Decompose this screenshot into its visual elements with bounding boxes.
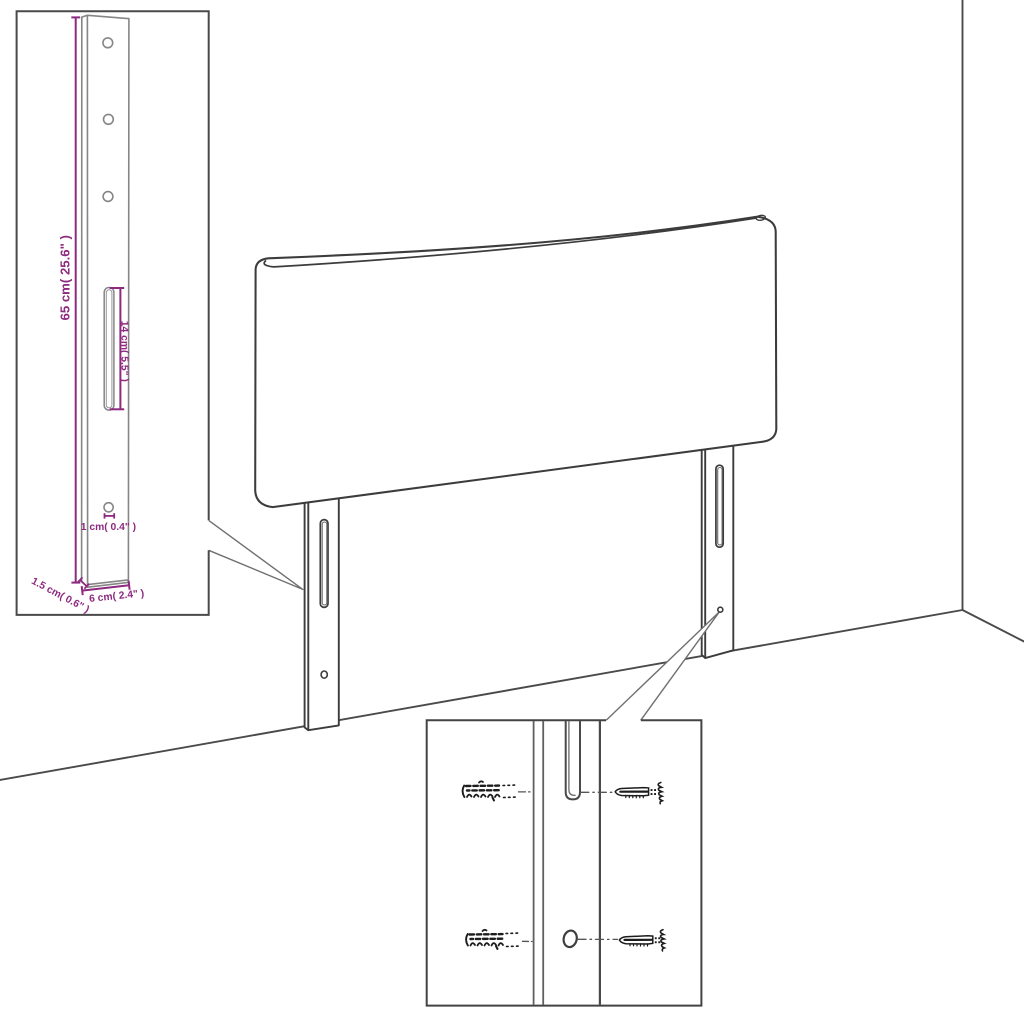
svg-text:14 cm( 5.5" ): 14 cm( 5.5" ) xyxy=(119,321,130,382)
svg-text:65 cm( 25.6" ): 65 cm( 25.6" ) xyxy=(58,235,73,320)
svg-text:1 cm( 0.4" ): 1 cm( 0.4" ) xyxy=(81,522,136,533)
